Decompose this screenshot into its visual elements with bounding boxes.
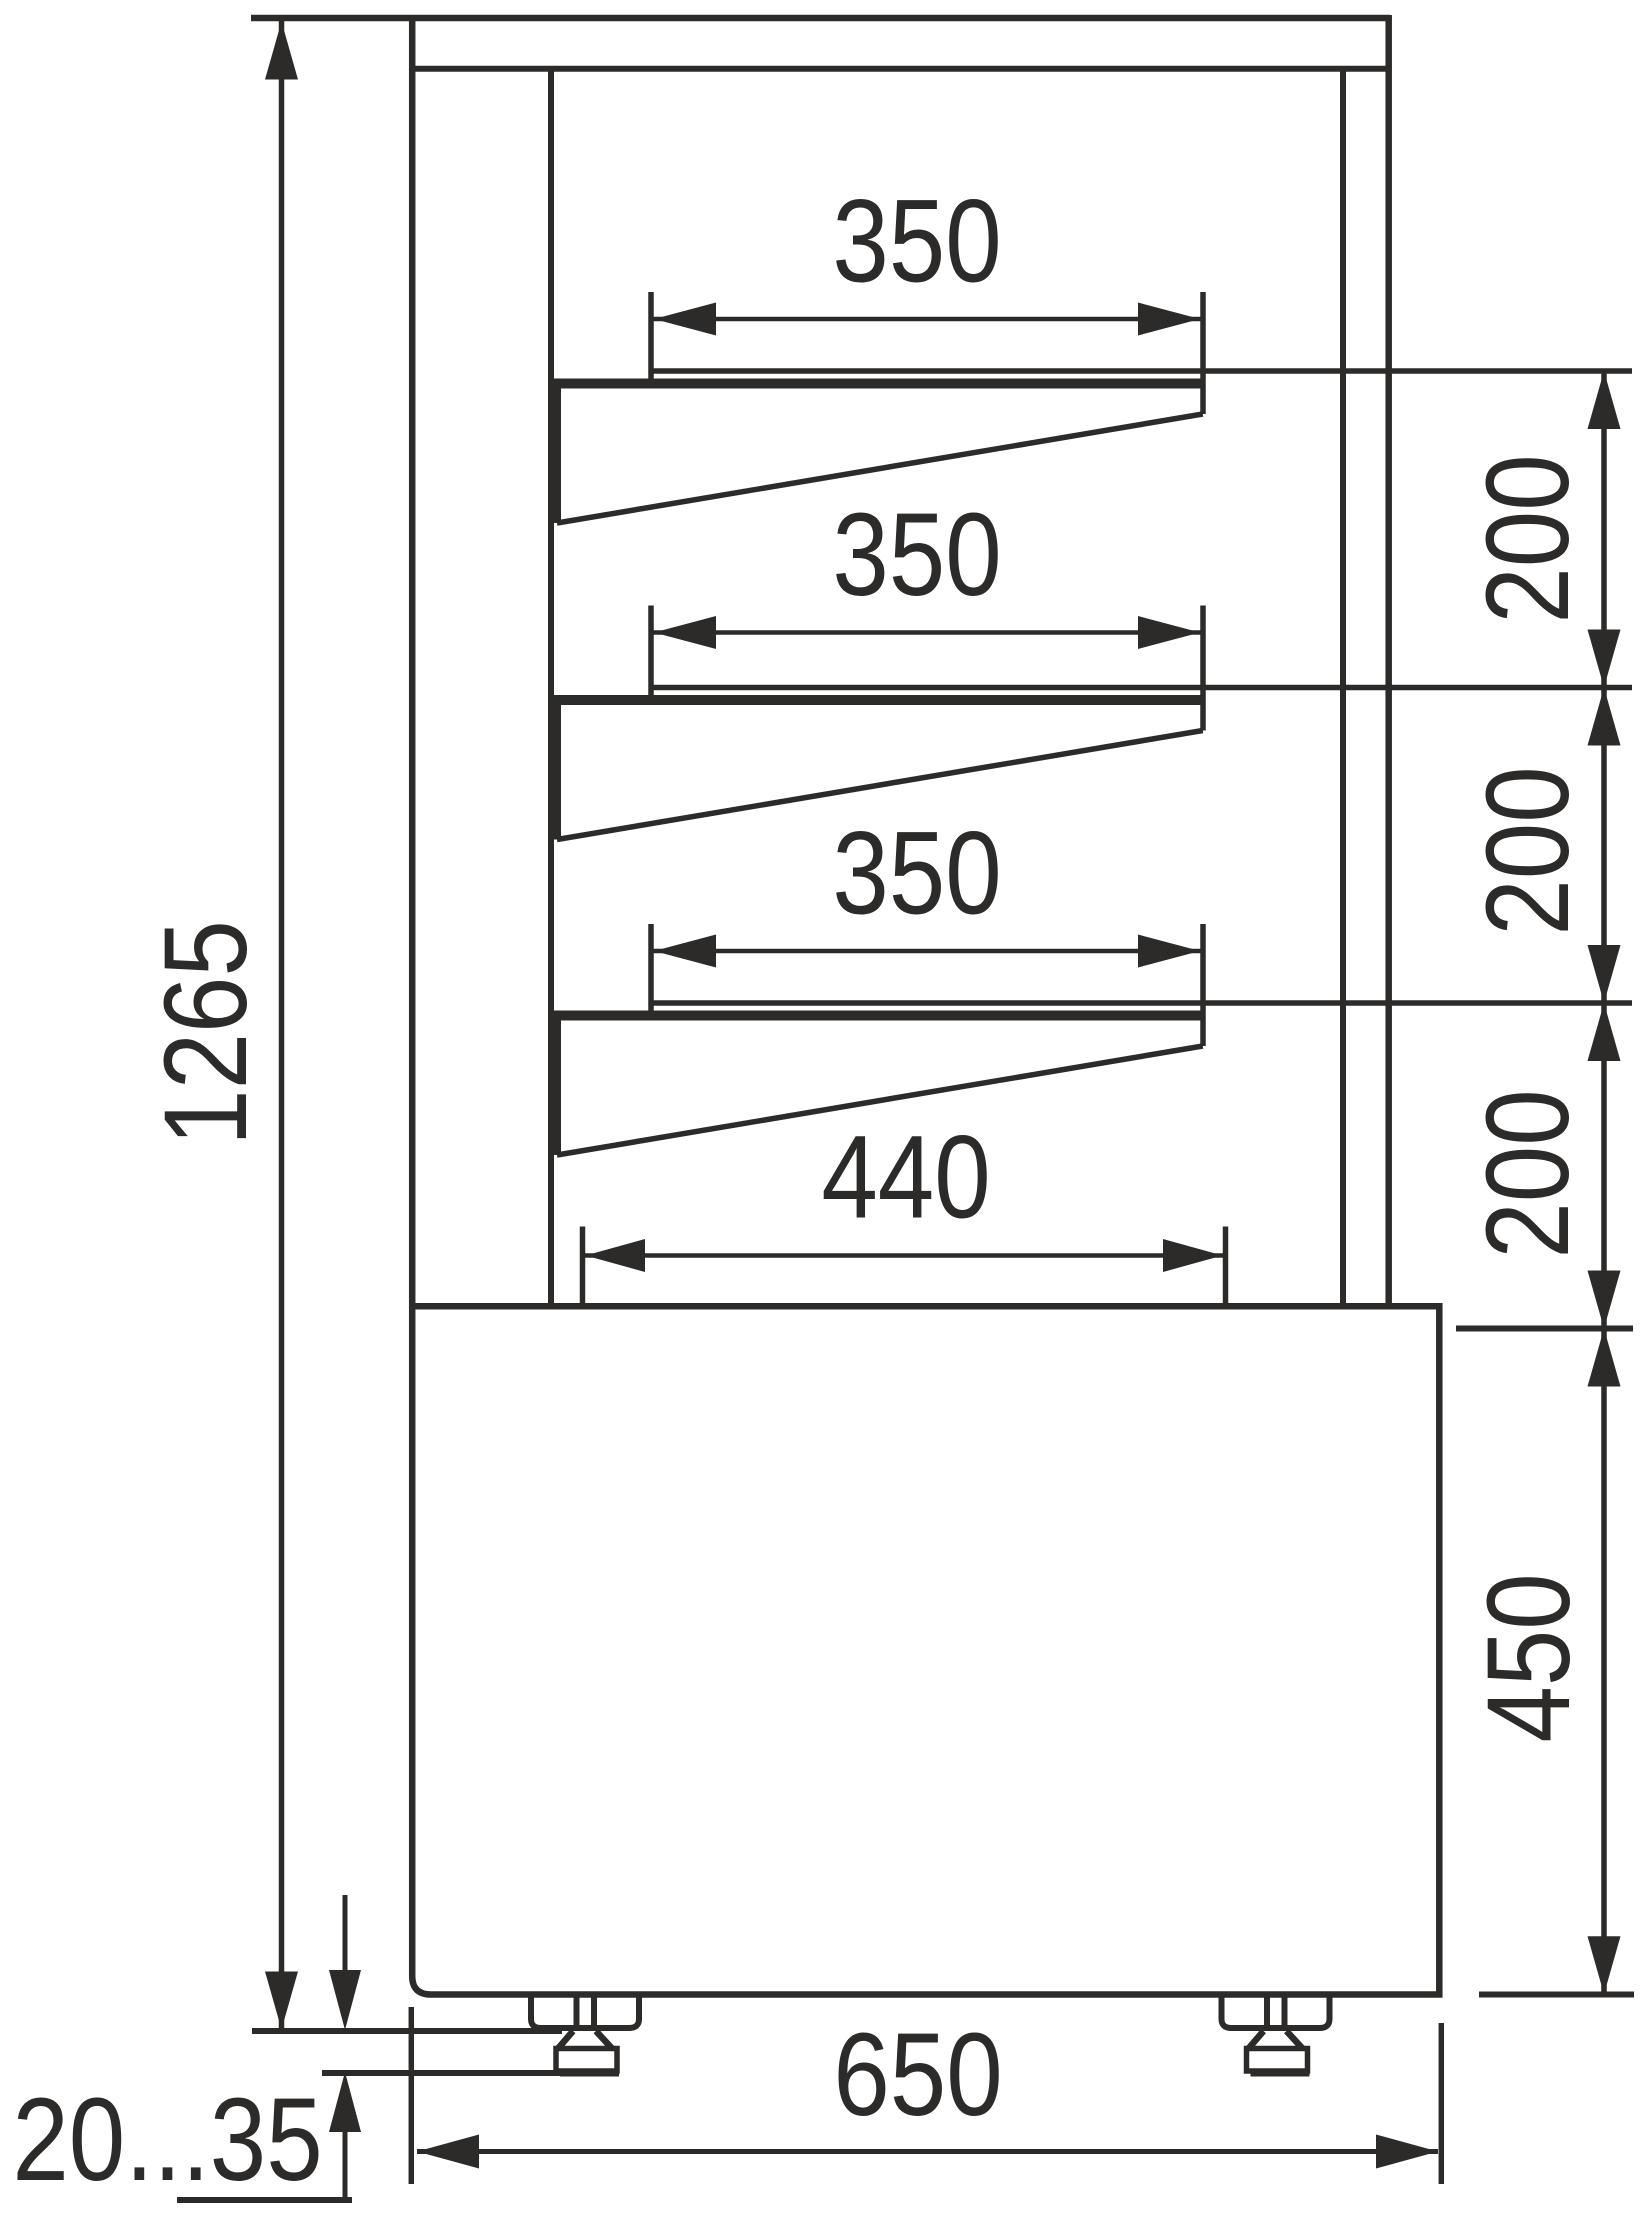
svg-text:200: 200 bbox=[1462, 766, 1594, 935]
svg-text:440: 440 bbox=[821, 1111, 990, 1243]
svg-text:350: 350 bbox=[832, 807, 1001, 939]
svg-text:650: 650 bbox=[833, 2009, 1002, 2141]
svg-text:1265: 1265 bbox=[140, 920, 272, 1146]
svg-text:20...35: 20...35 bbox=[12, 2074, 322, 2206]
svg-text:200: 200 bbox=[1462, 454, 1594, 623]
svg-text:350: 350 bbox=[832, 489, 1001, 621]
svg-text:450: 450 bbox=[1463, 1573, 1595, 1742]
svg-text:350: 350 bbox=[832, 175, 1001, 307]
svg-text:200: 200 bbox=[1462, 1089, 1594, 1258]
